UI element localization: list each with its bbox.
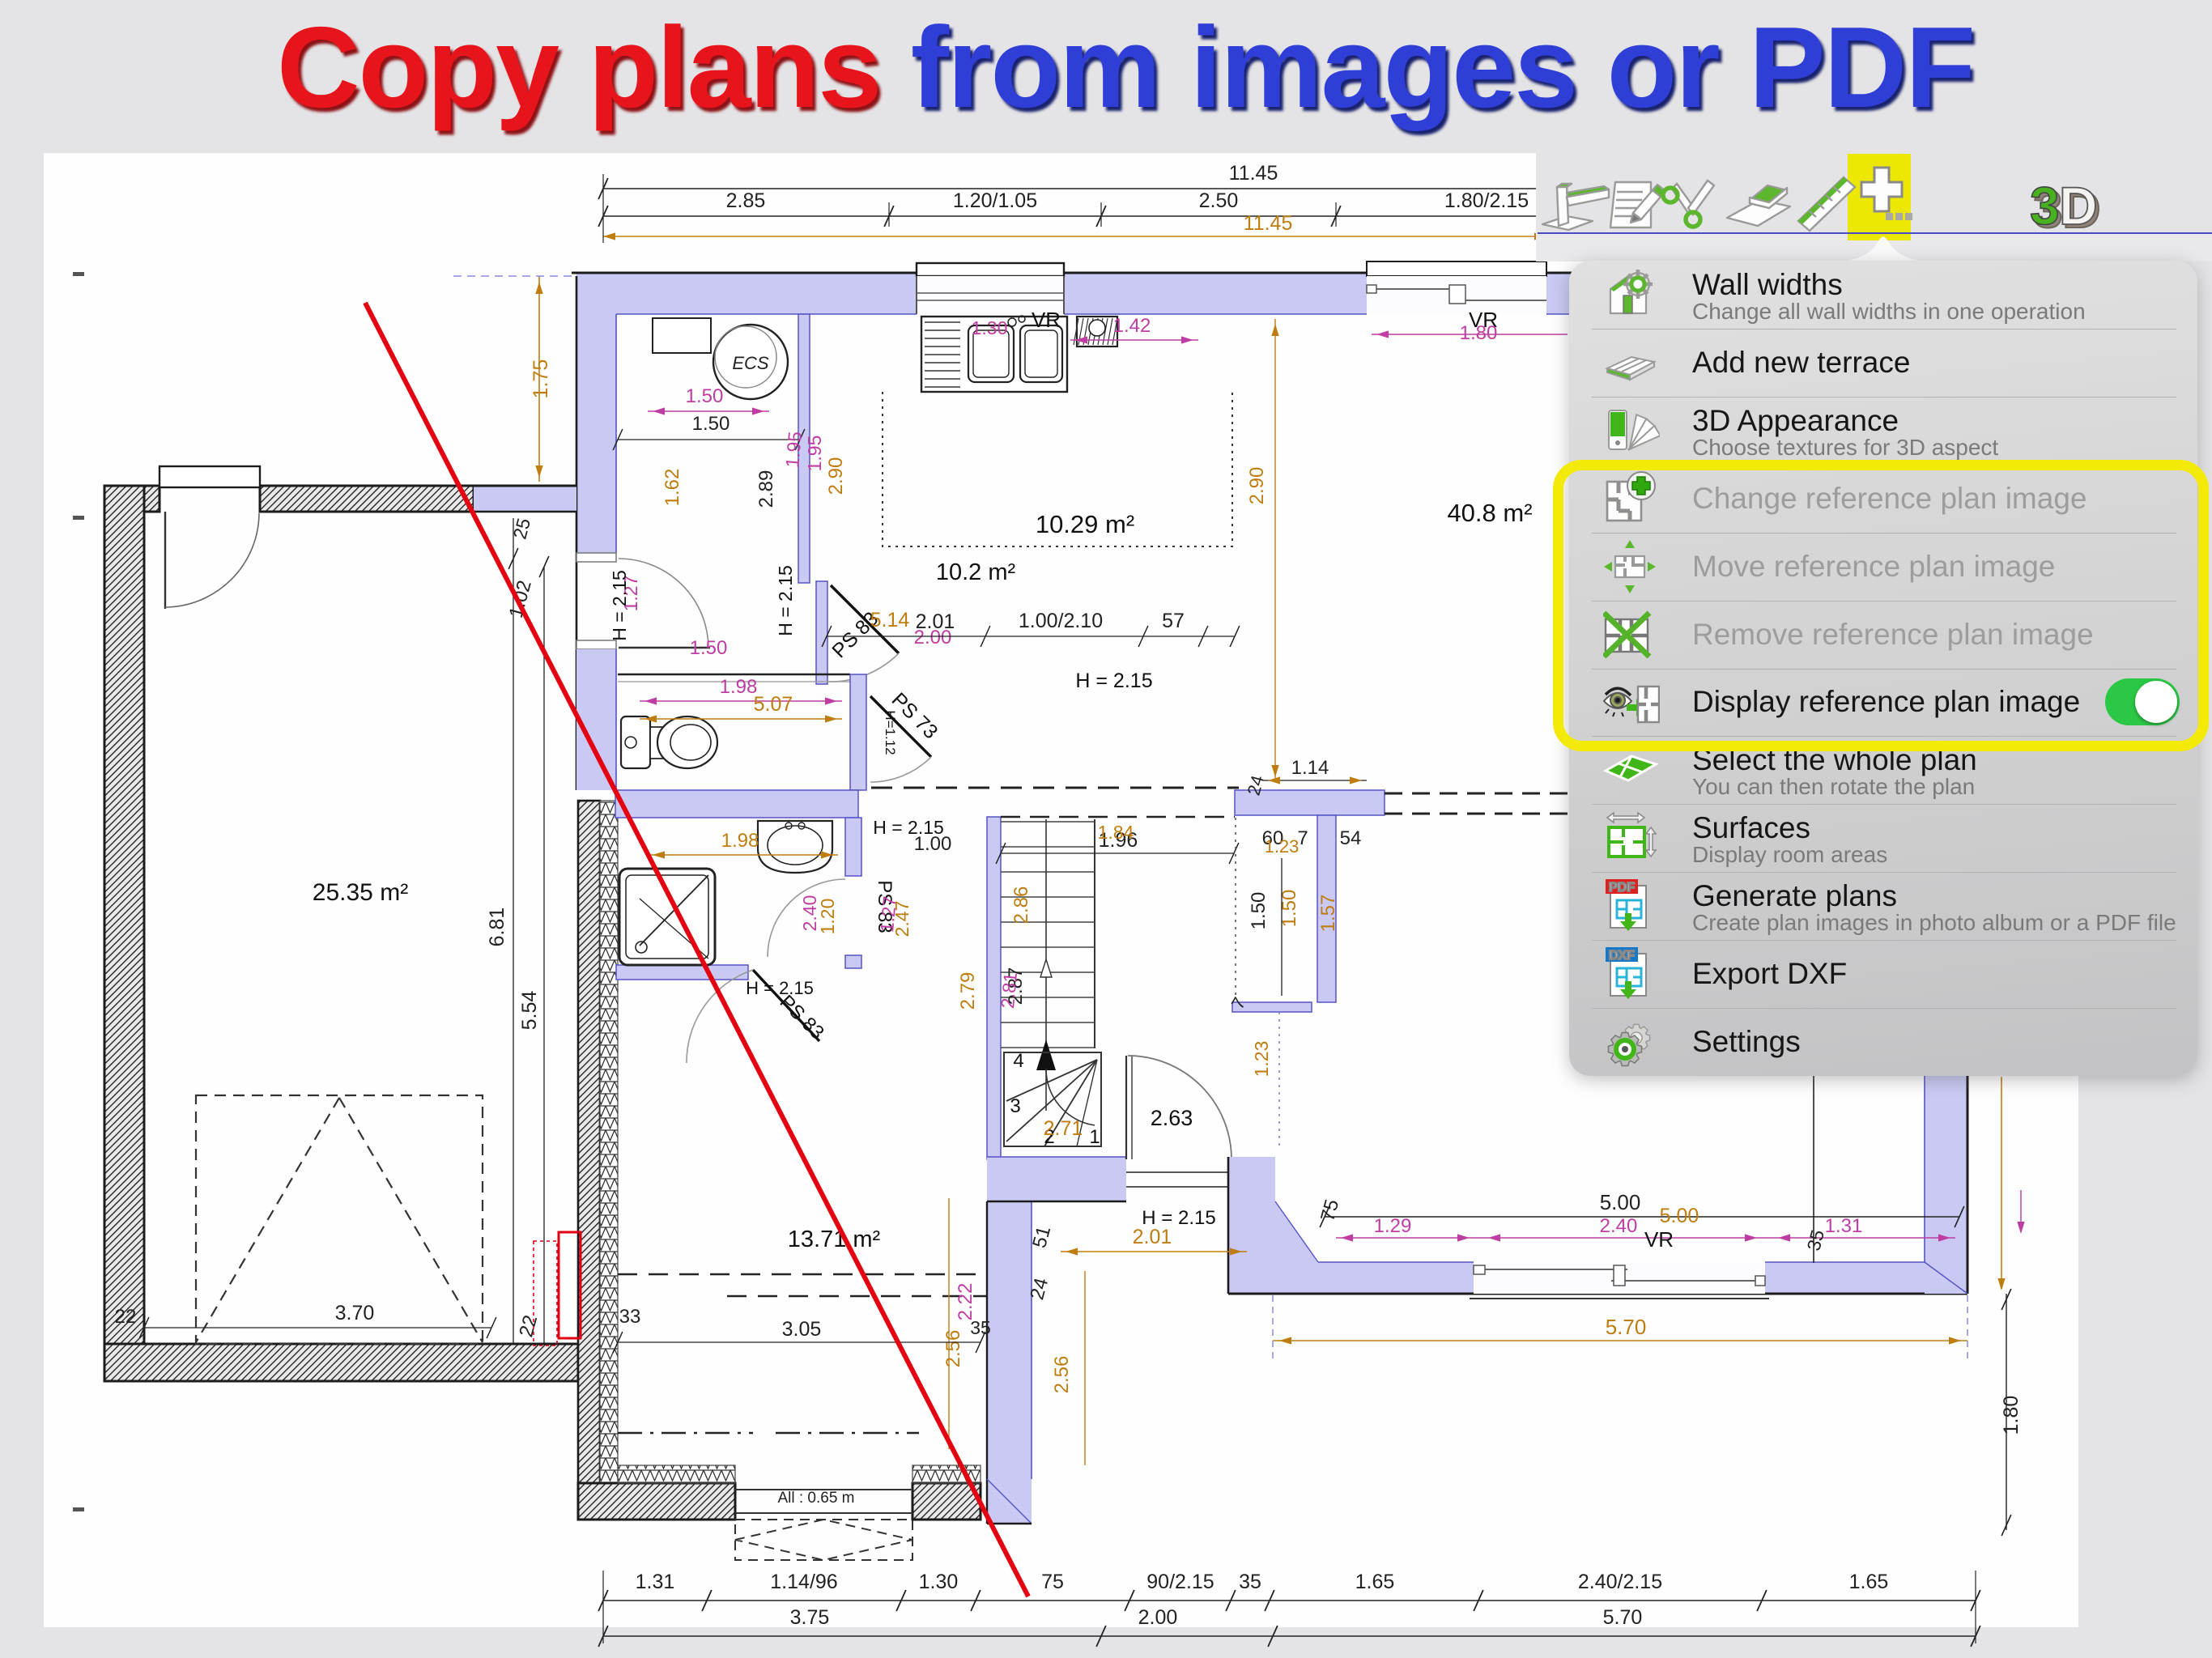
svg-text:1.42: 1.42: [1113, 315, 1151, 337]
svg-text:11.45: 11.45: [1244, 212, 1293, 235]
svg-text:1.20/1.05: 1.20/1.05: [953, 189, 1037, 212]
svg-text:1.00/2.10: 1.00/2.10: [1019, 610, 1103, 632]
svg-text:1.14: 1.14: [1291, 757, 1329, 779]
svg-text:5.70: 5.70: [1606, 1315, 1647, 1339]
svg-text:22: 22: [515, 1313, 542, 1340]
svg-text:2.40: 2.40: [1600, 1215, 1638, 1237]
svg-text:1.80: 1.80: [1460, 322, 1498, 344]
svg-text:1.30: 1.30: [972, 317, 1008, 338]
svg-text:90/2.15: 90/2.15: [1146, 1571, 1214, 1593]
svg-text:2.86: 2.86: [1010, 886, 1032, 925]
svg-text:5.07: 5.07: [754, 693, 793, 716]
svg-text:3.70: 3.70: [335, 1302, 375, 1324]
svg-text:10.2 m²: 10.2 m²: [936, 559, 1016, 585]
svg-text:ECS: ECS: [732, 353, 769, 373]
svg-text:5.54: 5.54: [518, 991, 541, 1031]
svg-text:1.80/2.15: 1.80/2.15: [1444, 189, 1529, 212]
svg-text:7: 7: [1227, 994, 1250, 1013]
svg-text:2.50: 2.50: [1199, 189, 1239, 212]
svg-text:1.29: 1.29: [1374, 1215, 1412, 1237]
svg-text:1.50: 1.50: [692, 413, 730, 435]
svg-text:6.81: 6.81: [486, 908, 508, 947]
svg-text:1.23: 1.23: [1251, 1041, 1272, 1078]
svg-text:5.00: 5.00: [1660, 1205, 1699, 1227]
svg-text:5.00: 5.00: [1600, 1190, 1641, 1214]
svg-text:VR: VR: [1032, 308, 1061, 332]
svg-text:2.79: 2.79: [957, 972, 979, 1010]
svg-text:1.31: 1.31: [636, 1571, 675, 1593]
svg-text:4: 4: [1013, 1050, 1023, 1072]
svg-text:5.14: 5.14: [870, 609, 910, 631]
svg-text:2.01: 2.01: [1133, 1226, 1172, 1248]
svg-text:PS 83: PS 83: [776, 991, 828, 1044]
svg-text:2.90: 2.90: [1246, 467, 1268, 505]
svg-text:H = 2.15: H = 2.15: [1075, 670, 1152, 692]
svg-text:2.63: 2.63: [1151, 1106, 1193, 1130]
svg-text:1.14/96: 1.14/96: [770, 1571, 837, 1593]
svg-text:75: 75: [1317, 1197, 1343, 1224]
svg-text:1.62: 1.62: [661, 469, 683, 507]
svg-text:1.95: 1.95: [804, 436, 825, 472]
svg-text:VR: VR: [1644, 1227, 1674, 1252]
svg-text:H=1.12: H=1.12: [883, 710, 898, 755]
svg-text:22: 22: [115, 1306, 137, 1328]
svg-text:57: 57: [1162, 610, 1185, 632]
svg-text:35: 35: [1239, 1571, 1261, 1593]
svg-text:1.80: 1.80: [2000, 1396, 2023, 1435]
svg-text:25: 25: [508, 516, 534, 541]
svg-text:3.75: 3.75: [790, 1606, 830, 1629]
svg-text:1.30: 1.30: [919, 1571, 959, 1593]
svg-text:3: 3: [1010, 1095, 1020, 1117]
svg-text:H = 2.15: H = 2.15: [746, 978, 814, 998]
svg-text:13.71 m²: 13.71 m²: [788, 1226, 881, 1252]
svg-text:1.50: 1.50: [690, 637, 728, 659]
svg-text:51: 51: [1028, 1224, 1055, 1251]
svg-text:2.00: 2.00: [914, 627, 952, 648]
svg-text:H = 2.15: H = 2.15: [609, 570, 630, 641]
svg-text:1.84: 1.84: [1098, 822, 1134, 843]
svg-text:2.90: 2.90: [825, 457, 847, 495]
svg-text:2.56: 2.56: [942, 1330, 964, 1368]
svg-text:D: D: [2059, 176, 2098, 234]
svg-text:35: 35: [970, 1317, 991, 1338]
svg-text:11.45: 11.45: [1229, 162, 1278, 185]
svg-text:54: 54: [1340, 827, 1362, 849]
svg-text:3.05: 3.05: [782, 1318, 822, 1341]
svg-text:1.65: 1.65: [1849, 1571, 1889, 1593]
svg-text:All : 0.65 m: All : 0.65 m: [777, 1490, 854, 1507]
svg-text:1.75: 1.75: [530, 359, 552, 399]
svg-text:10.29 m²: 10.29 m²: [1036, 510, 1134, 538]
svg-text:40.8 m²: 40.8 m²: [1447, 499, 1532, 527]
svg-text:2.81: 2.81: [997, 971, 1021, 1010]
svg-text:75: 75: [1041, 1571, 1064, 1593]
svg-text:2.47: 2.47: [891, 901, 912, 937]
svg-text:PDF: PDF: [1609, 881, 1635, 895]
svg-text:2.89: 2.89: [755, 470, 777, 508]
svg-text:1.20: 1.20: [817, 899, 838, 935]
svg-text:1.00: 1.00: [914, 833, 952, 855]
svg-text:1.50: 1.50: [1248, 892, 1270, 930]
svg-text:1.50: 1.50: [686, 385, 724, 407]
svg-text:2.85: 2.85: [726, 189, 766, 212]
svg-text:1.23: 1.23: [1265, 836, 1300, 857]
svg-text:1.98: 1.98: [720, 676, 758, 698]
svg-text:2.56: 2.56: [1051, 1356, 1073, 1394]
svg-text:24: 24: [1026, 1276, 1053, 1303]
svg-text:1.95: 1.95: [781, 431, 806, 469]
svg-text:3: 3: [2030, 176, 2060, 234]
svg-text:2.22: 2.22: [955, 1283, 976, 1321]
svg-text:33: 33: [619, 1306, 641, 1328]
svg-text:2.00: 2.00: [1138, 1606, 1178, 1629]
svg-text:2.40/2.15: 2.40/2.15: [1578, 1571, 1662, 1593]
svg-text:1.31: 1.31: [1825, 1215, 1863, 1237]
svg-text:1.65: 1.65: [1355, 1571, 1395, 1593]
svg-text:1.98: 1.98: [721, 830, 759, 852]
svg-text:H = 2.15: H = 2.15: [775, 565, 796, 636]
svg-text:2.71: 2.71: [1044, 1117, 1083, 1140]
svg-text:DXF: DXF: [1609, 949, 1635, 963]
svg-text:1.57: 1.57: [1317, 895, 1339, 933]
svg-text:5.70: 5.70: [1603, 1606, 1643, 1629]
svg-text:25.35 m²: 25.35 m²: [313, 879, 408, 906]
svg-text:1: 1: [1089, 1126, 1100, 1148]
